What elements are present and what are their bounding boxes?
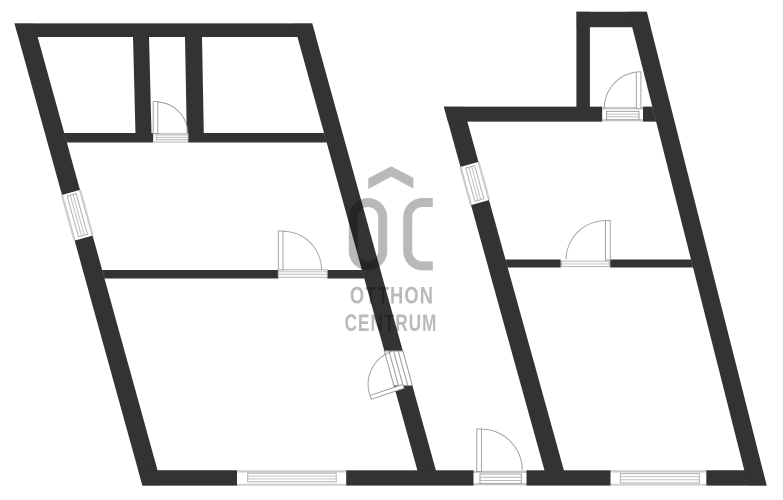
svg-text:OTTHON: OTTHON	[350, 282, 434, 309]
svg-text:CENTRUM: CENTRUM	[345, 310, 438, 337]
